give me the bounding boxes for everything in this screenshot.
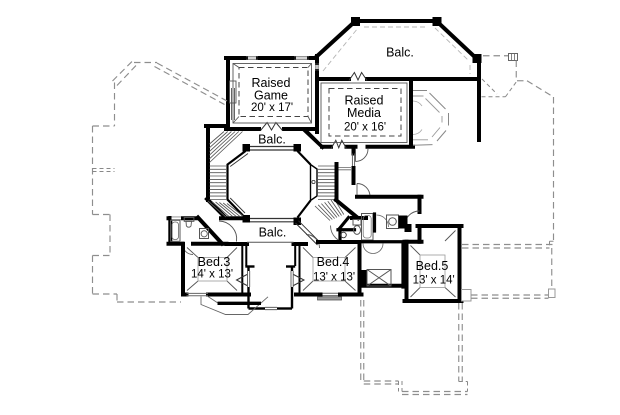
svg-text:Media: Media: [347, 106, 381, 120]
svg-text:Balc.: Balc.: [259, 226, 287, 240]
svg-text:20' x 16': 20' x 16': [344, 122, 386, 134]
svg-text:13' x 14': 13' x 14': [413, 275, 455, 287]
svg-text:Game: Game: [254, 89, 288, 103]
svg-text:Balc.: Balc.: [386, 46, 414, 60]
svg-text:14' x 13': 14' x 13': [191, 269, 233, 281]
svg-text:Bed.5: Bed.5: [416, 259, 449, 273]
svg-text:Balc.: Balc.: [258, 132, 286, 146]
svg-text:13' x 13': 13' x 13': [313, 272, 355, 284]
svg-text:20' x 17': 20' x 17': [251, 102, 293, 114]
svg-text:Bed.4: Bed.4: [317, 255, 350, 269]
svg-text:Bed.3: Bed.3: [198, 255, 231, 269]
